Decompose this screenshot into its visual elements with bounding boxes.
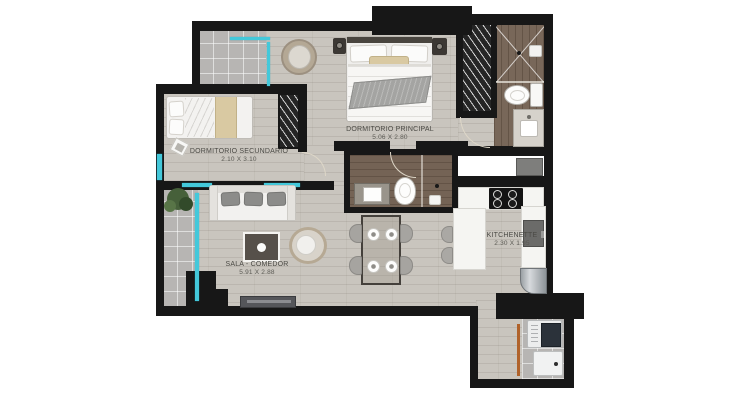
sofa	[209, 185, 296, 221]
heater-knob	[554, 362, 558, 366]
lounge-chair	[289, 227, 327, 264]
bed-runner	[215, 97, 237, 138]
room-name: KITCHENETTE	[452, 232, 572, 240]
shower-control	[429, 195, 441, 205]
dining-chair	[349, 256, 362, 275]
lamp	[436, 43, 443, 50]
coffee-table	[243, 232, 280, 262]
room-name: DORMITORIO PRINCIPAL	[330, 126, 450, 134]
place-setting	[385, 228, 398, 241]
toilet	[504, 85, 530, 105]
wall	[456, 20, 463, 118]
armchair	[281, 39, 317, 75]
room-dimensions: 5.06 X 2.80	[330, 134, 450, 142]
wall	[156, 84, 307, 94]
room-dimensions: 5.91 X 2.88	[197, 269, 317, 277]
burner	[493, 190, 502, 199]
cooktop	[489, 188, 523, 209]
corridor-floor-2	[498, 318, 524, 380]
room-name: DORMITORIO SECUNDARIO	[179, 148, 299, 156]
wall	[192, 21, 200, 92]
plant-leaves	[179, 197, 193, 211]
ac-unit	[516, 158, 543, 176]
place-setting	[367, 260, 380, 273]
room-label-sala: SALA - COMEDOR 5.91 X 2.88	[197, 261, 317, 277]
floor-plan: DORMITORIO PRINCIPAL 5.06 X 2.80 DORMITO…	[0, 0, 730, 410]
burner	[493, 199, 502, 208]
pillow	[169, 119, 185, 136]
sofa-armrest	[210, 186, 218, 220]
window-glass	[267, 42, 270, 86]
plant	[163, 185, 199, 219]
tv-console	[240, 296, 296, 308]
wall	[470, 379, 574, 388]
chair-cushion	[296, 235, 316, 255]
sink	[363, 187, 382, 202]
bathroom-vanity	[513, 109, 544, 147]
wall	[456, 146, 552, 156]
sofa-pillow	[244, 192, 263, 207]
place-setting	[367, 228, 380, 241]
room-dimensions: 2.10 X 3.10	[179, 156, 299, 164]
washing-machine	[527, 320, 562, 348]
shower-glass	[421, 155, 423, 207]
wall	[196, 21, 376, 31]
sofa-pillow	[221, 192, 241, 207]
wall	[298, 84, 307, 152]
appliance-stainless	[520, 268, 547, 294]
toilet-lid-line	[399, 183, 411, 198]
sofa-armrest	[287, 186, 295, 220]
shower-drain	[435, 184, 439, 188]
water-heater	[533, 351, 563, 376]
laundry-door	[517, 324, 520, 376]
tv	[247, 300, 291, 303]
window-glass	[230, 37, 270, 40]
table-decor	[257, 243, 266, 252]
double-bed	[346, 36, 433, 122]
headboard	[347, 37, 432, 43]
sink	[520, 120, 538, 137]
burner	[508, 190, 517, 199]
room-label-kitchenette: KITCHENETTE 2.30 X 1.95	[452, 232, 572, 248]
window-glass	[157, 154, 162, 180]
room-dimensions: 2.30 X 1.95	[452, 240, 572, 248]
wall	[564, 317, 574, 381]
single-bed	[166, 96, 253, 139]
lamp	[336, 42, 343, 49]
wall	[186, 289, 228, 309]
master-closet	[458, 22, 494, 114]
duvet-folds	[185, 98, 214, 137]
toilet	[394, 177, 416, 205]
armchair-cushion	[288, 45, 311, 69]
room-label-principal: DORMITORIO PRINCIPAL 5.06 X 2.80	[330, 126, 450, 142]
nightstand	[432, 38, 447, 55]
nightstand	[333, 38, 346, 54]
bathroom-vanity	[354, 183, 390, 205]
pillow	[168, 100, 184, 117]
room-name: SALA - COMEDOR	[197, 261, 317, 269]
wall	[456, 176, 552, 187]
faucet	[527, 115, 531, 119]
room-label-secundario: DORMITORIO SECUNDARIO 2.10 X 3.10	[179, 148, 299, 164]
toilet-lid-line	[510, 90, 525, 101]
dining-table	[361, 215, 401, 285]
wall	[496, 293, 584, 319]
bar-stool	[441, 247, 453, 264]
dining-chair	[349, 224, 362, 243]
plant-leaves	[164, 200, 176, 212]
place-setting	[385, 260, 398, 273]
washer-lid	[541, 323, 561, 347]
toilet-tank	[530, 83, 543, 107]
sofa-pillow	[267, 192, 286, 207]
washer-controls	[531, 325, 538, 345]
burner	[508, 199, 517, 208]
shower-drain	[517, 51, 521, 55]
shower-control	[529, 45, 542, 57]
wall	[462, 14, 553, 25]
wall	[470, 306, 478, 388]
